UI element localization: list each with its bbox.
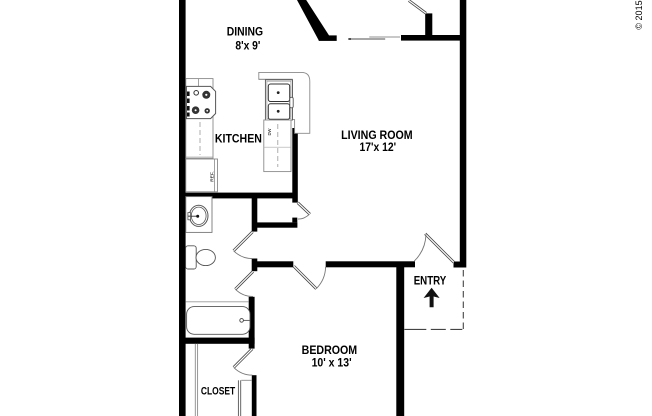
svg-text:REF.: REF. — [209, 171, 215, 181]
svg-text:© 2015: © 2015 — [634, 0, 644, 29]
svg-text:KITCHEN: KITCHEN — [215, 132, 262, 146]
svg-text:DINING: DINING — [227, 25, 263, 39]
svg-text:ENTRY: ENTRY — [414, 274, 447, 288]
svg-text:8'x 9': 8'x 9' — [235, 39, 260, 52]
svg-text:LIVING ROOM: LIVING ROOM — [341, 128, 413, 142]
svg-text:10' x 13': 10' x 13' — [312, 356, 352, 370]
svg-text:17'x 12': 17'x 12' — [360, 141, 397, 154]
svg-text:CLOSET: CLOSET — [201, 386, 236, 398]
svg-text:DW: DW — [267, 128, 272, 135]
